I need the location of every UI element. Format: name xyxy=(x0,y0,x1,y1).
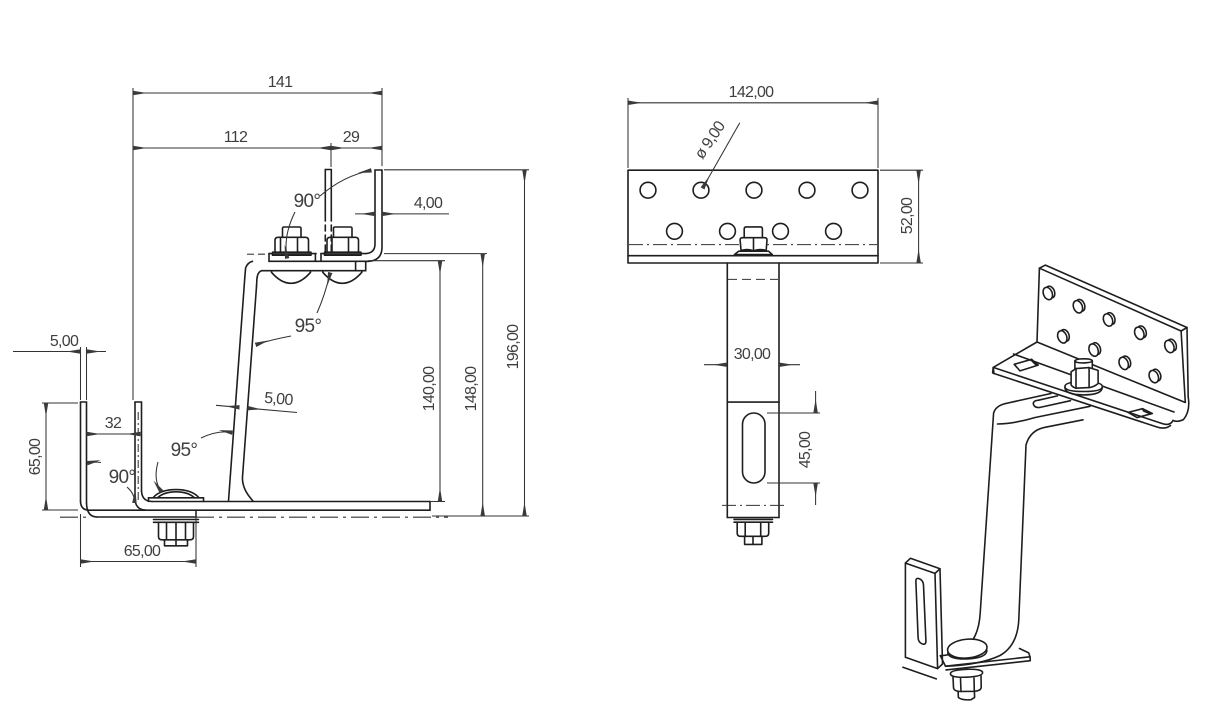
svg-text:32: 32 xyxy=(105,415,122,432)
svg-text:141: 141 xyxy=(268,74,293,91)
svg-text:5,00: 5,00 xyxy=(264,390,295,409)
svg-text:30,00: 30,00 xyxy=(734,346,771,363)
svg-text:65,00: 65,00 xyxy=(27,438,44,475)
svg-text:142,00: 142,00 xyxy=(729,84,775,101)
svg-text:ø 9,00: ø 9,00 xyxy=(692,118,730,162)
svg-text:4,00: 4,00 xyxy=(414,195,443,212)
svg-text:196,00: 196,00 xyxy=(505,324,522,370)
svg-text:148,00: 148,00 xyxy=(463,366,480,412)
svg-text:5,00: 5,00 xyxy=(50,333,79,350)
svg-text:52,00: 52,00 xyxy=(899,197,916,234)
svg-text:140,00: 140,00 xyxy=(421,366,438,412)
svg-text:95°: 95° xyxy=(171,440,198,461)
svg-text:95°: 95° xyxy=(295,316,322,337)
svg-text:90°: 90° xyxy=(294,191,321,212)
svg-text:65,00: 65,00 xyxy=(124,543,161,560)
svg-text:29: 29 xyxy=(343,129,360,146)
svg-text:45,00: 45,00 xyxy=(797,431,814,468)
svg-text:90°: 90° xyxy=(109,467,136,488)
svg-text:112: 112 xyxy=(224,129,248,146)
